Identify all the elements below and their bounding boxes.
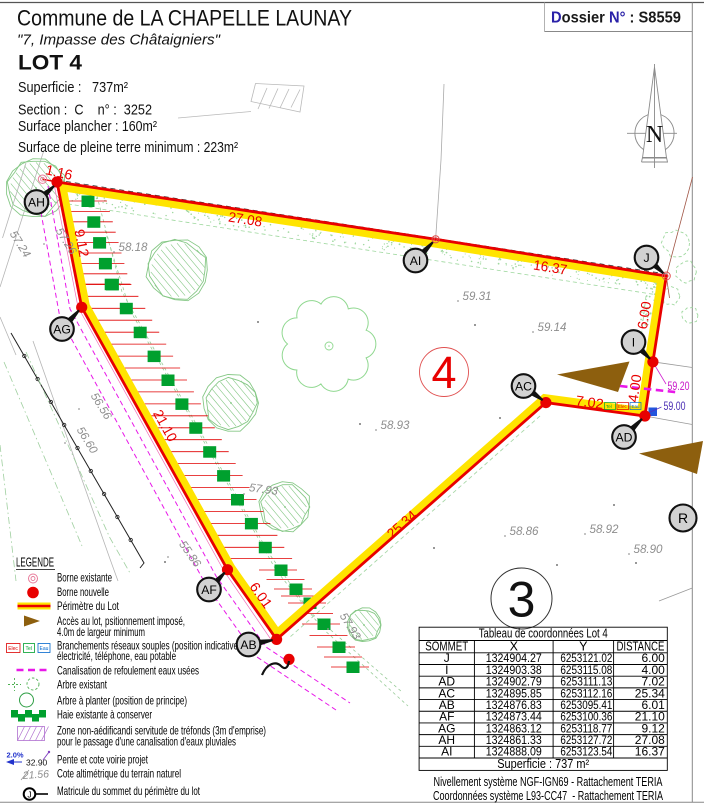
svg-text:AI: AI: [441, 745, 452, 759]
svg-text:3: 3: [508, 572, 536, 628]
svg-text:AD: AD: [616, 430, 633, 444]
svg-text:Nivellement système NGF-IGN69: Nivellement système NGF-IGN69 - Rattache…: [434, 774, 663, 789]
svg-text:Superficie : 737 m²: Superficie : 737 m²: [497, 756, 590, 771]
svg-text:Borne existante: Borne existante: [57, 571, 112, 585]
svg-text:Surface de pleine terre minimu: Surface de pleine terre minimum : 223m²: [18, 140, 238, 156]
svg-text:Tel: Tel: [606, 404, 612, 409]
svg-text:pour le passage d'une canalisa: pour le passage d'une canalisation d'eau…: [57, 735, 236, 749]
svg-text:Section : C n° : 3252: Section : C n° : 3252: [18, 102, 152, 118]
svg-text:Eau: Eau: [632, 404, 641, 409]
svg-text:4: 4: [431, 347, 456, 398]
svg-text:Tableau de coordonnées Lot 4: Tableau de coordonnées Lot 4: [479, 626, 608, 641]
svg-text:Elec: Elec: [618, 404, 628, 409]
svg-text:électricité, téléphone, eau po: électricité, téléphone, eau potable: [57, 649, 176, 663]
svg-text:16.37: 16.37: [635, 745, 665, 759]
svg-text:Pente et cote voirie projet: Pente et cote voirie projet: [57, 753, 148, 767]
svg-text:58.92: 58.92: [590, 524, 620, 536]
svg-text:58.90: 58.90: [634, 544, 664, 556]
svg-text:AI: AI: [410, 254, 422, 268]
svg-text:LEGENDE: LEGENDE: [16, 555, 54, 570]
svg-text:Surface plancher : 160m²: Surface plancher : 160m²: [18, 119, 157, 135]
svg-text:Commune de LA CHAPELLE LAUNAY: Commune de LA CHAPELLE LAUNAY: [17, 6, 352, 31]
svg-text:Arbre à planter (position de p: Arbre à planter (position de principe): [57, 694, 187, 708]
svg-text:Tel: Tel: [26, 646, 32, 652]
svg-text:59.31: 59.31: [463, 291, 492, 303]
svg-text:AH: AH: [28, 195, 45, 209]
svg-text:Canalisation de refoulement ea: Canalisation de refoulement eaux usées: [57, 664, 199, 678]
svg-text:LOT 4: LOT 4: [18, 52, 82, 75]
svg-text:59.14: 59.14: [538, 322, 567, 334]
svg-text:Cote altimétrique du terrain n: Cote altimétrique du terrain naturel: [57, 767, 181, 781]
svg-text:Arbre existant: Arbre existant: [57, 678, 107, 692]
svg-text:"7, Impasse des Châtaigniers": "7, Impasse des Châtaigniers": [17, 32, 221, 49]
svg-text:21.56: 21.56: [21, 768, 49, 782]
svg-text:AC: AC: [515, 379, 532, 393]
svg-text:AB: AB: [240, 638, 256, 652]
svg-text:Borne nouvelle: Borne nouvelle: [57, 585, 109, 599]
svg-text:Périmètre du Lot: Périmètre du Lot: [57, 599, 119, 613]
svg-text:58.93: 58.93: [381, 420, 411, 432]
svg-text:59.00: 59.00: [664, 401, 686, 413]
svg-text:4.0m de largeur minimum: 4.0m de largeur minimum: [57, 625, 145, 639]
svg-text:58.18: 58.18: [119, 242, 149, 254]
svg-text:AG: AG: [53, 322, 71, 336]
svg-text:I: I: [632, 335, 635, 349]
svg-text:Coordonnées système L93-CC47: Coordonnées système L93-CC47 - Rattachem…: [433, 788, 663, 803]
svg-text:J: J: [27, 789, 31, 799]
svg-text:J: J: [643, 251, 649, 265]
svg-text:58.86: 58.86: [510, 526, 540, 538]
svg-text:Matricule du sommet du périmèt: Matricule du sommet du périmètre du lot: [57, 784, 200, 798]
svg-text:Elec: Elec: [8, 646, 18, 652]
svg-text:Eau: Eau: [40, 646, 49, 652]
svg-text:Superficie : 737m²: Superficie : 737m²: [18, 80, 128, 96]
svg-text:2.0%: 2.0%: [7, 751, 24, 760]
svg-text:Haie existante à conserver: Haie existante à conserver: [57, 708, 152, 722]
svg-text:R: R: [678, 510, 688, 526]
svg-text:N: N: [646, 122, 663, 148]
svg-text:Dossier N° : S8559: Dossier N° : S8559: [551, 10, 681, 27]
svg-text:AF: AF: [201, 583, 217, 597]
svg-text:59.20: 59.20: [668, 381, 690, 393]
